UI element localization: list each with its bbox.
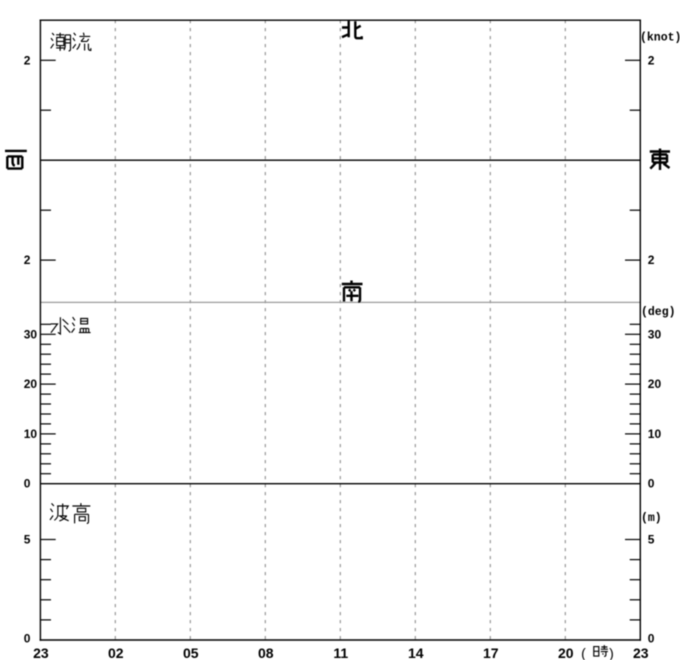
svg-text:(knot): (knot) [640, 31, 680, 44]
svg-text:10: 10 [24, 427, 38, 441]
svg-text:2: 2 [24, 53, 31, 67]
svg-text:08: 08 [258, 645, 274, 660]
svg-text:14: 14 [408, 645, 424, 660]
svg-text:30: 30 [24, 327, 38, 341]
svg-text:(: ( [581, 645, 586, 660]
svg-text:(m): (m) [641, 512, 662, 525]
svg-text:5: 5 [24, 533, 31, 547]
svg-text:0: 0 [648, 632, 655, 646]
svg-text:10: 10 [648, 427, 662, 441]
svg-text:(deg): (deg) [641, 306, 676, 319]
svg-text:2: 2 [24, 253, 31, 267]
svg-text:23: 23 [633, 645, 649, 660]
svg-text:30: 30 [648, 327, 662, 341]
svg-text:23: 23 [33, 645, 49, 660]
svg-text:5: 5 [648, 533, 655, 547]
svg-text:17: 17 [483, 645, 499, 660]
svg-text:2: 2 [648, 53, 655, 67]
svg-text:2: 2 [648, 253, 655, 267]
svg-text:20: 20 [558, 645, 574, 660]
svg-text:02: 02 [108, 645, 124, 660]
svg-text:0: 0 [648, 477, 655, 491]
svg-text:0: 0 [24, 477, 31, 491]
svg-text:11: 11 [333, 645, 348, 660]
svg-text:20: 20 [24, 377, 38, 391]
svg-text:0: 0 [24, 632, 31, 646]
svg-text:): ) [609, 645, 614, 660]
svg-text:05: 05 [183, 645, 199, 660]
svg-text:20: 20 [648, 377, 662, 391]
